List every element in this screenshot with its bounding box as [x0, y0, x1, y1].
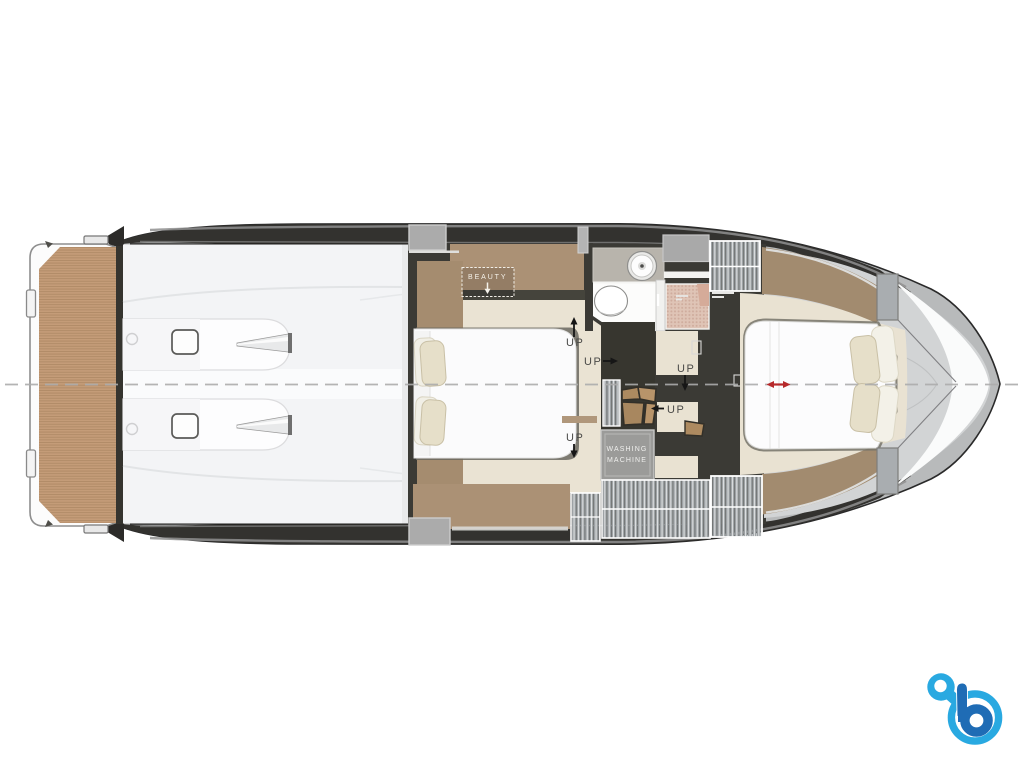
svg-text:UP: UP [677, 363, 695, 375]
svg-text:WASHING: WASHING [607, 446, 648, 453]
svg-text:UP: UP [667, 404, 685, 416]
svg-text:UP: UP [566, 337, 584, 349]
svg-text:MACHINE: MACHINE [607, 457, 647, 464]
svg-text:UP: UP [566, 432, 584, 444]
svg-text:BEAUTY: BEAUTY [468, 274, 507, 281]
svg-text:UP: UP [584, 356, 602, 368]
